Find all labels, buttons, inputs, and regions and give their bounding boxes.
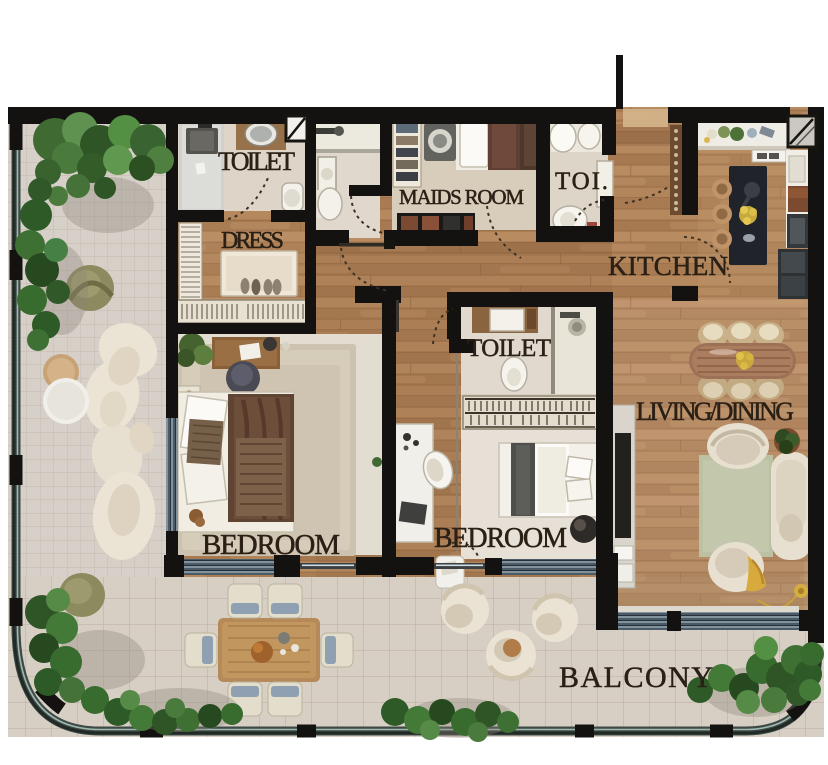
svg-text:MAIDS ROOM: MAIDS ROOM bbox=[399, 185, 524, 209]
svg-text:BEDROOM: BEDROOM bbox=[434, 523, 567, 554]
svg-text:LIVING/DINING: LIVING/DINING bbox=[636, 397, 794, 426]
svg-text:BEDROOM: BEDROOM bbox=[202, 529, 340, 561]
svg-text:DRESS: DRESS bbox=[221, 228, 284, 254]
svg-text:TOILET: TOILET bbox=[467, 335, 551, 362]
svg-text:KITCHEN: KITCHEN bbox=[608, 251, 728, 281]
svg-text:TOILET: TOILET bbox=[218, 147, 295, 176]
